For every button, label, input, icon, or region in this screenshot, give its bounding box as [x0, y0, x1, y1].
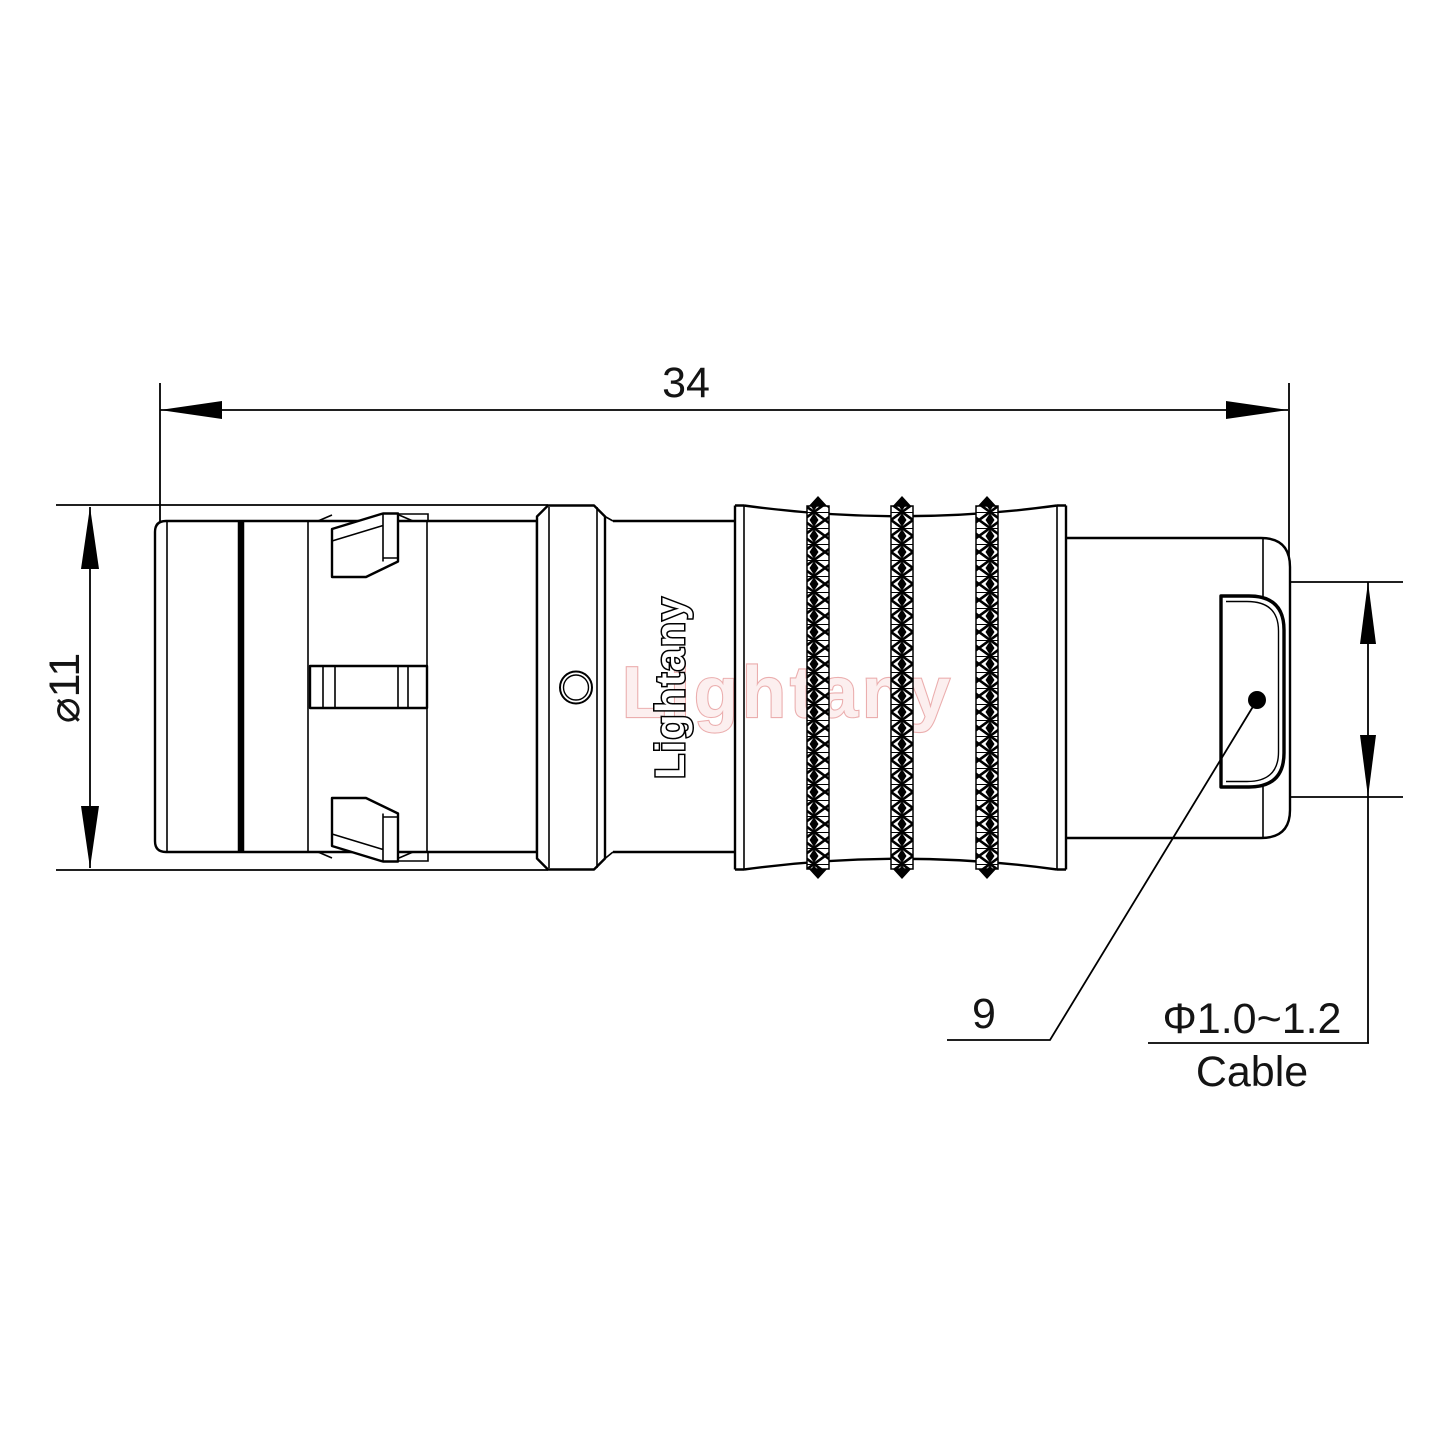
boot-window [1221, 596, 1284, 787]
center-key-pin [310, 666, 427, 708]
knurl-band-2 [891, 496, 913, 879]
cable-spec-word: Cable [1196, 1048, 1308, 1096]
dim-overall-length: 34 [160, 359, 1289, 559]
vent-hole [560, 672, 592, 704]
knurl-band-3 [976, 496, 998, 879]
dim-cable-opening [1291, 582, 1403, 1043]
engraved-brand-text: Lightany [647, 596, 693, 779]
bayonet-tab-upper [332, 514, 398, 578]
dim-length-label: 34 [662, 359, 710, 407]
dim-diameter-label: ⌀11 [41, 653, 89, 724]
connector-technical-drawing: Lightany Lightany [0, 0, 1440, 1440]
cable-spec-label: Φ1.0~1.2 Cable [1148, 995, 1369, 1096]
dim-body-diameter: ⌀11 [41, 505, 548, 870]
knurl-band-1 [807, 496, 829, 879]
cable-spec-value: Φ1.0~1.2 [1163, 995, 1342, 1043]
ref-9-label: 9 [972, 990, 996, 1038]
collar-ring [537, 506, 605, 870]
